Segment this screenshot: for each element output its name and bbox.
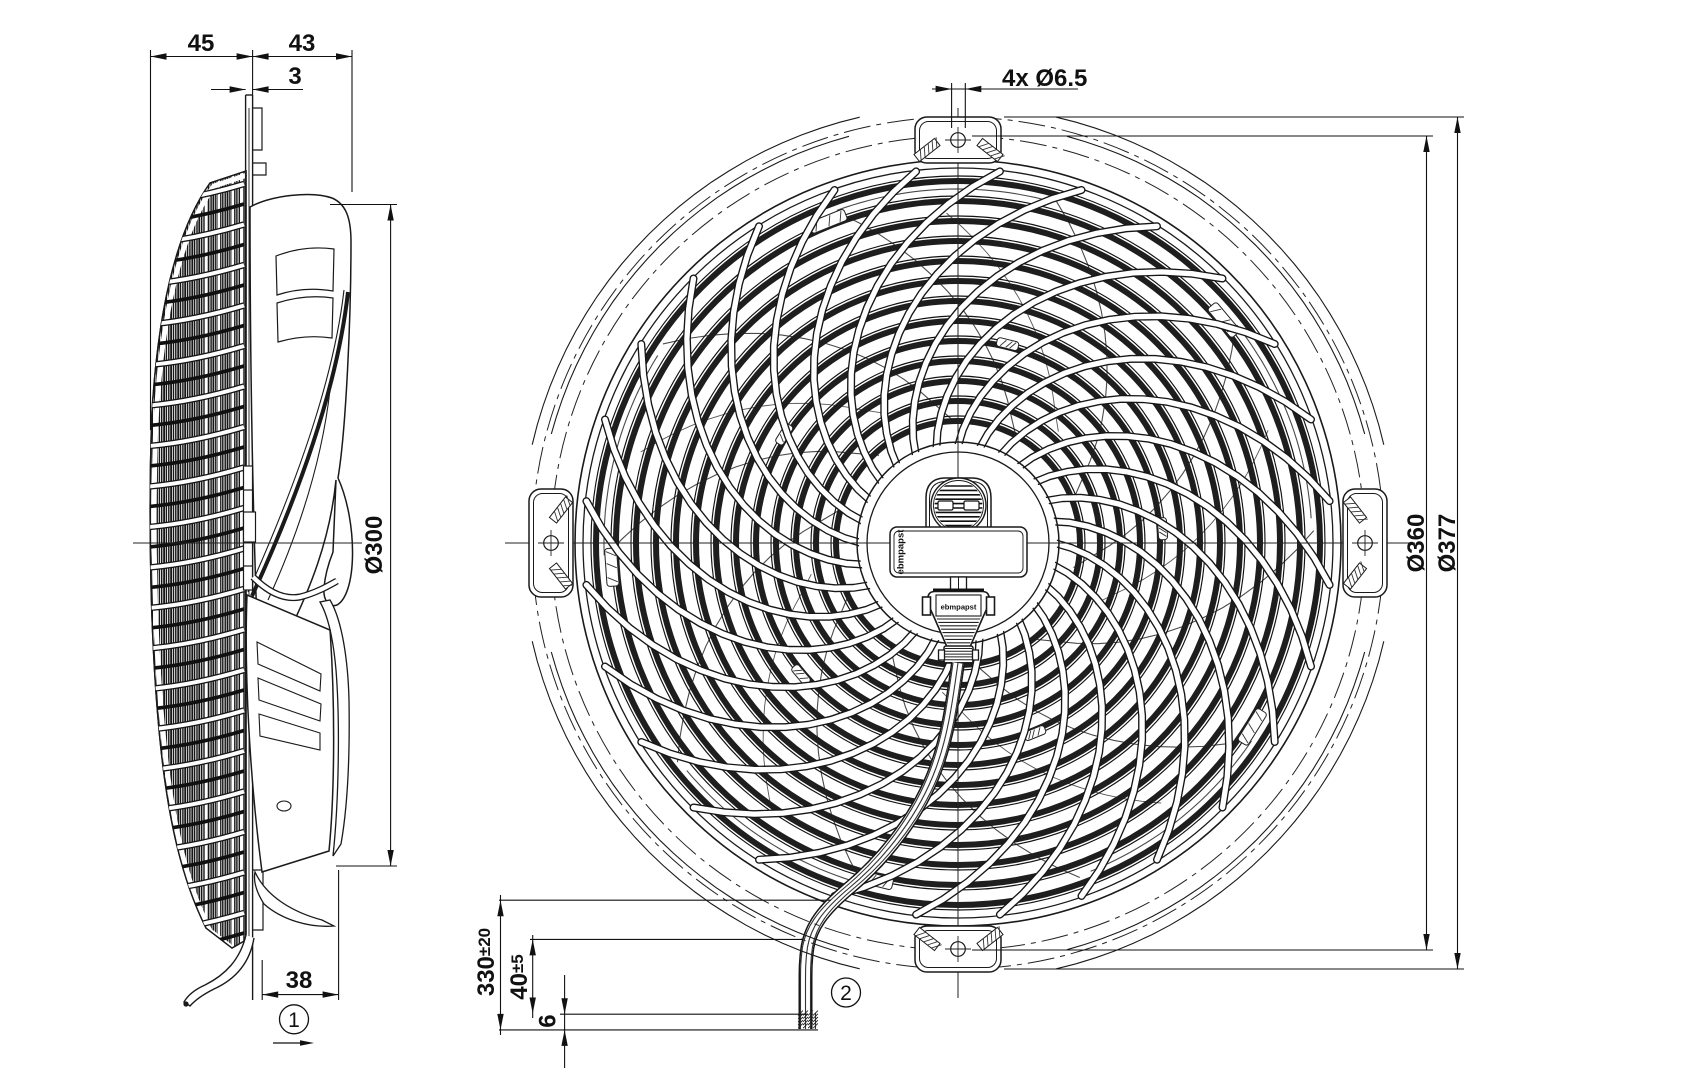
svg-text:1: 1 (288, 1009, 300, 1032)
svg-text:Ø300: Ø300 (361, 516, 388, 575)
svg-text:45: 45 (188, 30, 215, 57)
svg-text:3: 3 (288, 63, 301, 90)
svg-text:43: 43 (289, 30, 316, 57)
svg-text:ebmpapst: ebmpapst (941, 603, 977, 612)
svg-text:4x Ø6.5: 4x Ø6.5 (1002, 65, 1087, 92)
svg-text:6: 6 (535, 1014, 562, 1027)
svg-text:38: 38 (286, 967, 313, 994)
svg-text:Ø377: Ø377 (1434, 514, 1461, 573)
svg-text:Ø360: Ø360 (1403, 514, 1430, 573)
svg-text:ebmpapst: ebmpapst (896, 529, 907, 575)
svg-text:2: 2 (840, 982, 852, 1005)
